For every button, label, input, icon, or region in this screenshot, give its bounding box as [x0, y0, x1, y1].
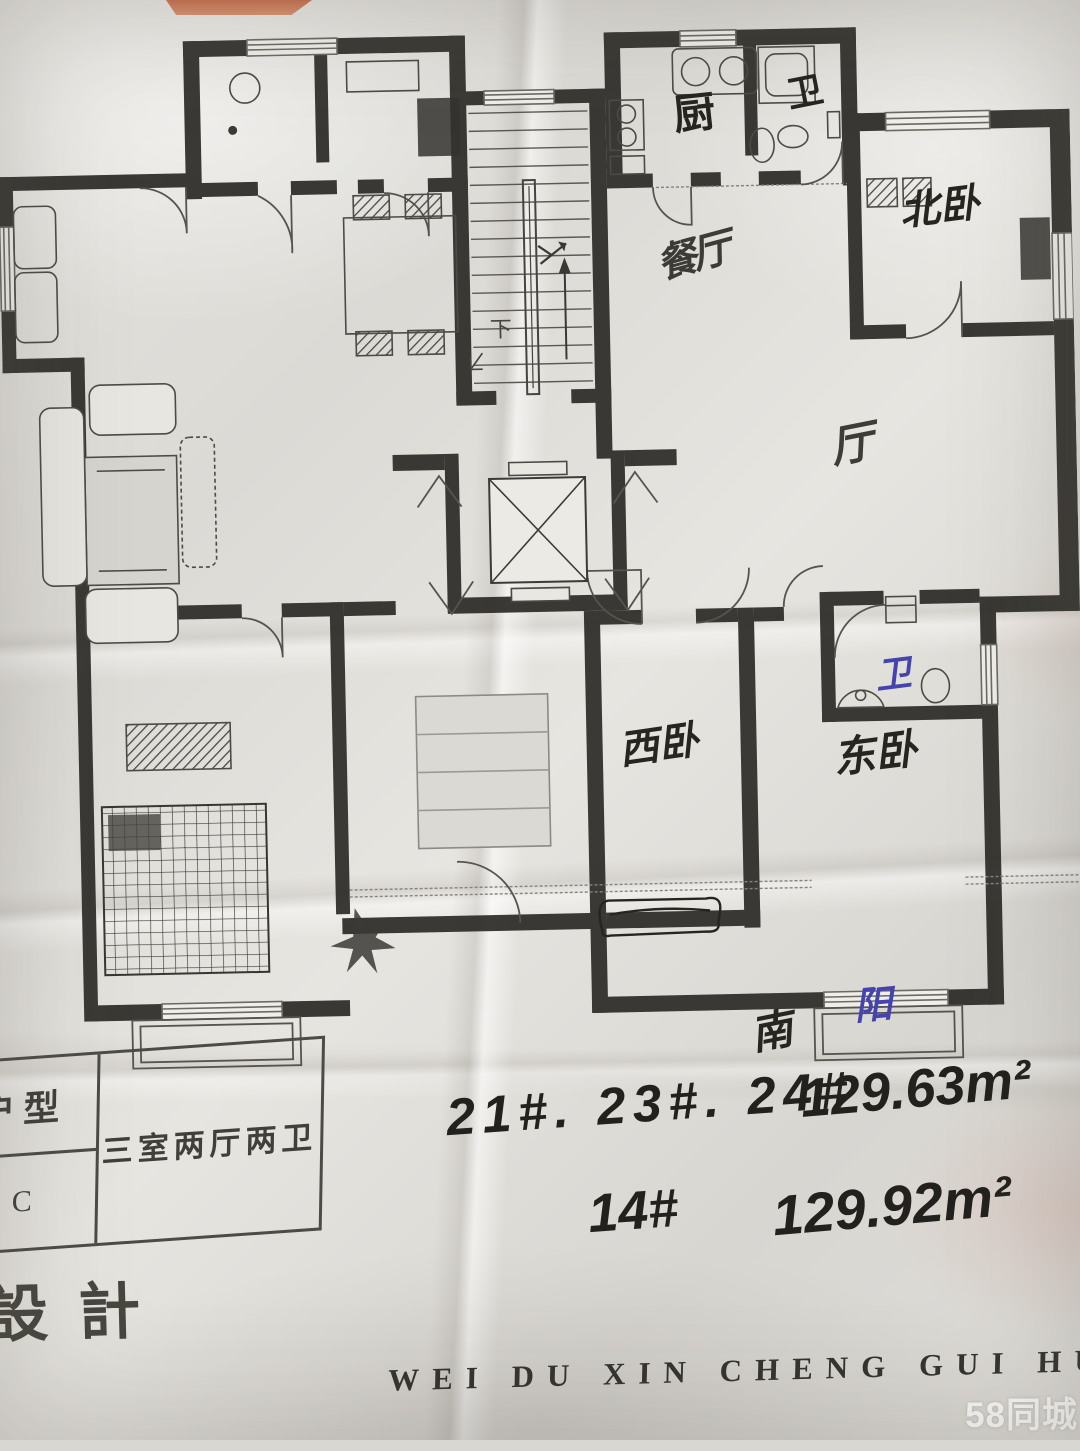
photo-vignette	[0, 0, 1080, 1440]
